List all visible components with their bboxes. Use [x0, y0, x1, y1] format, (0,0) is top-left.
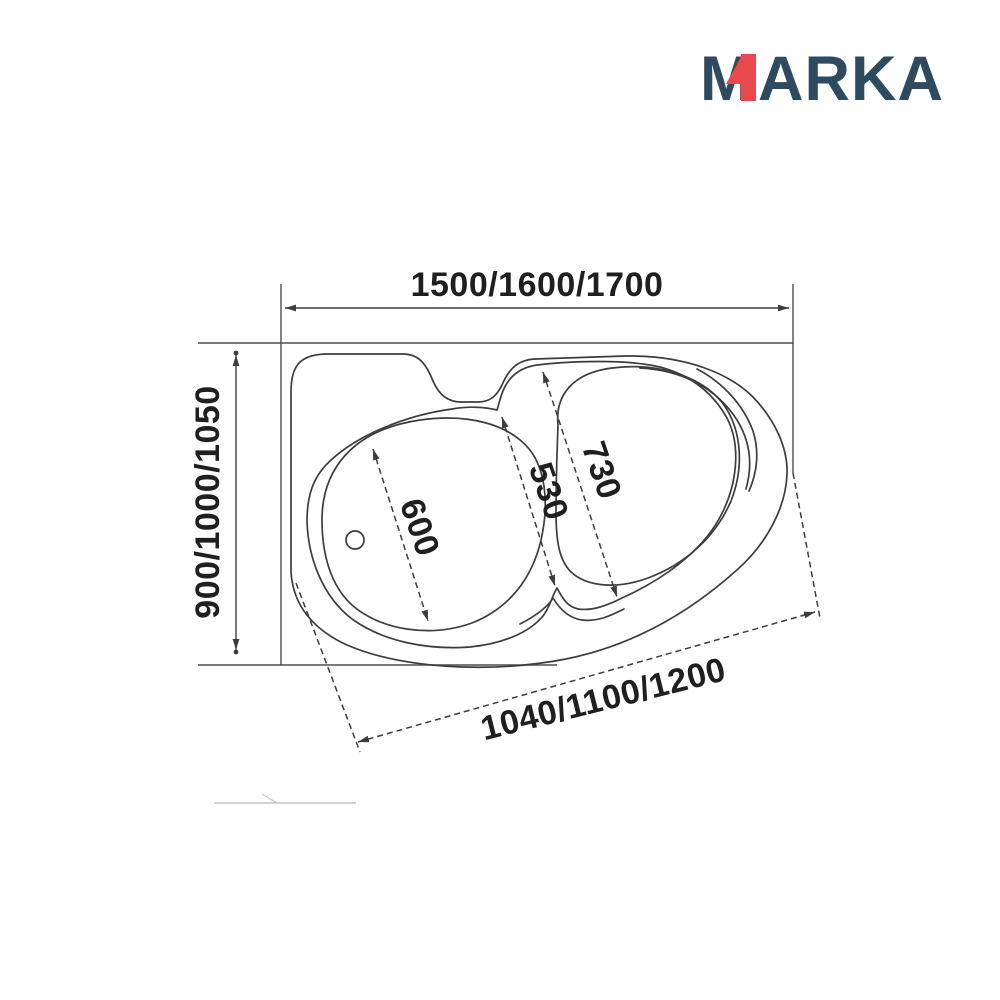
overall-depth-label: 900/1000/1050 — [189, 385, 227, 618]
middle-width-label: 530 — [521, 458, 576, 525]
right-basin-width-label: 730 — [574, 437, 629, 504]
wall-lines — [198, 284, 793, 665]
rim-arc-inner — [640, 368, 750, 489]
faint-shadow-line — [214, 794, 356, 803]
seat-step-line — [520, 598, 624, 624]
basin-rim-outline — [307, 362, 736, 648]
logo-one-bar — [741, 54, 756, 101]
dimension-labels: 1500/1600/1700 900/1000/1050 600 530 730… — [189, 266, 730, 748]
bathtub-dimension-diagram: 1500/1600/1700 900/1000/1050 600 530 730… — [0, 0, 1000, 1000]
brand-logo: M ARKA — [700, 44, 944, 114]
depth-dim-bottom-dot — [234, 650, 239, 655]
logo-rest: ARKA — [758, 44, 944, 114]
technical-drawing-canvas: 1500/1600/1700 900/1000/1050 600 530 730… — [0, 0, 1000, 1000]
drain-icon — [346, 531, 364, 549]
depth-dim-top-dot — [234, 351, 239, 356]
solid-dimension-lines — [234, 308, 789, 654]
shadow-tick — [262, 794, 277, 803]
left-basin-width-label: 600 — [392, 494, 447, 561]
overall-width-label: 1500/1600/1700 — [411, 266, 664, 304]
front-right-extension-line — [793, 473, 820, 618]
front-left-extension-line — [296, 583, 360, 752]
